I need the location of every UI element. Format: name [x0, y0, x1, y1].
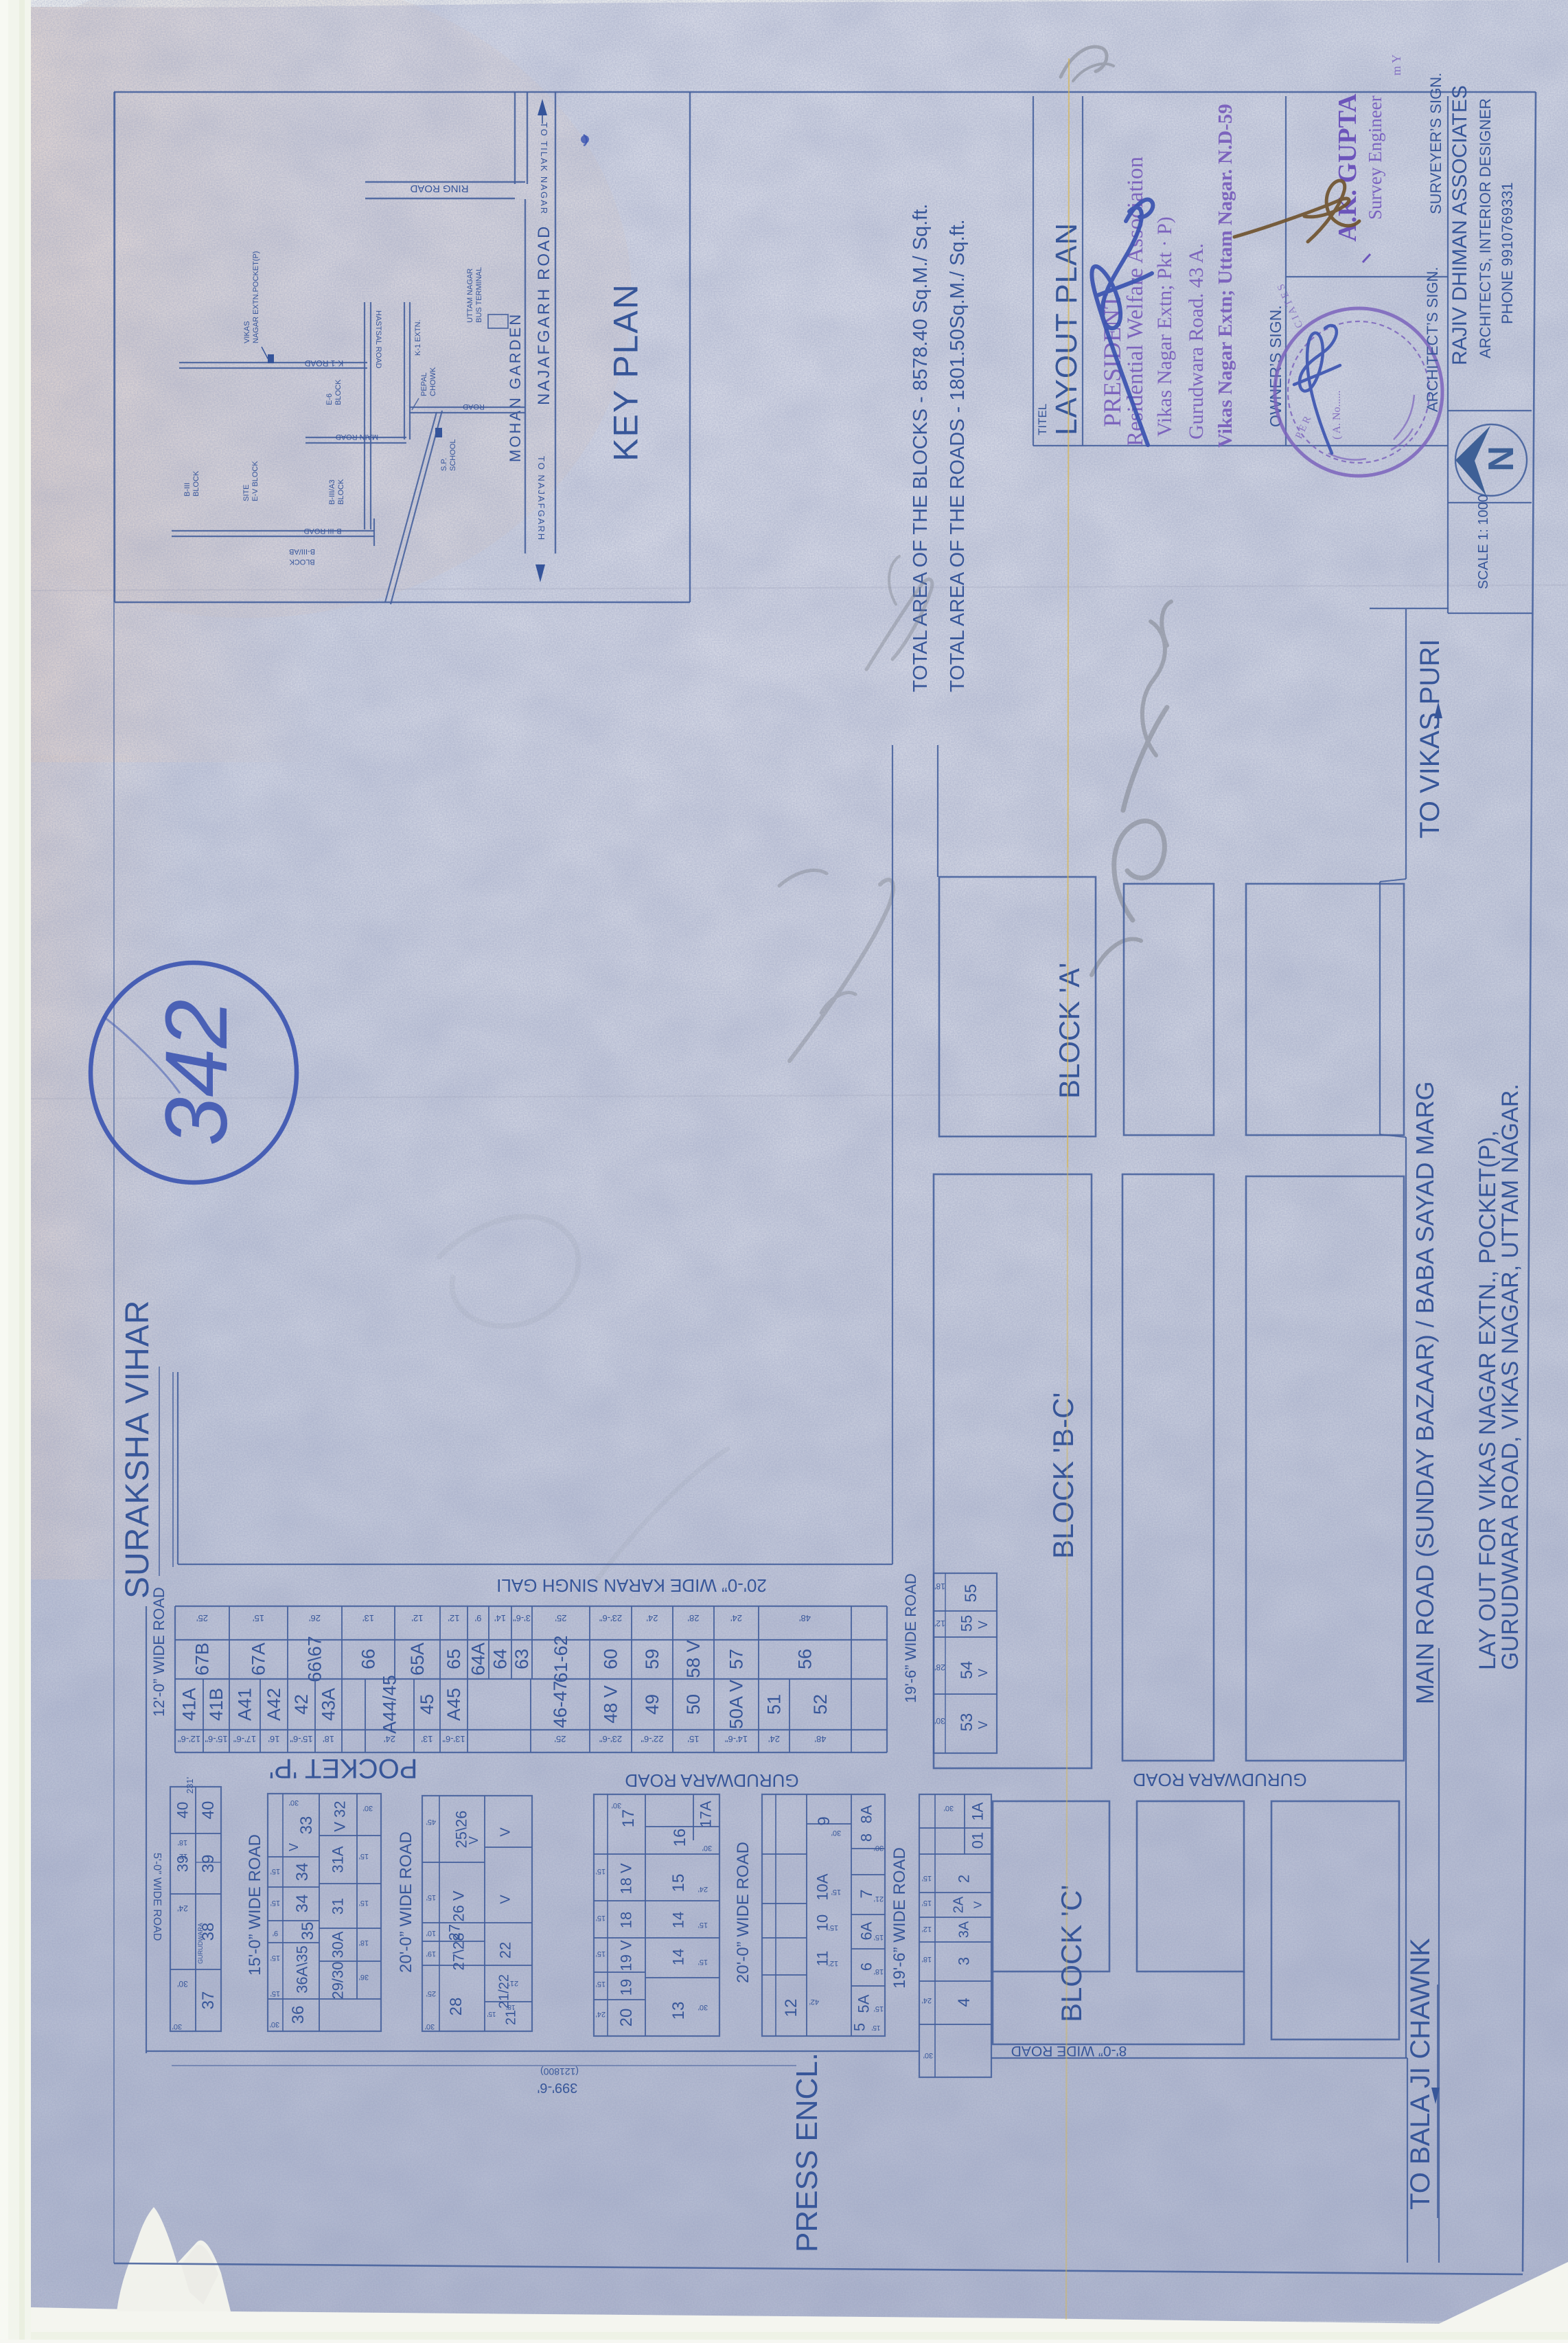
svg-text:24': 24' [647, 1613, 658, 1623]
svg-text:BLOCK 'B-C': BLOCK 'B-C' [1047, 1393, 1079, 1559]
svg-text:54: 54 [958, 1661, 976, 1680]
svg-text:15': 15' [829, 1923, 838, 1932]
svg-text:21': 21' [874, 1895, 884, 1903]
svg-text:12': 12' [922, 1925, 932, 1933]
svg-text:15': 15' [922, 1899, 932, 1907]
svg-text:2A: 2A [952, 1896, 967, 1913]
svg-text:16: 16 [671, 1829, 689, 1847]
svg-text:23'-6": 23'-6" [599, 1734, 623, 1744]
svg-text:48 V: 48 V [600, 1685, 621, 1724]
svg-text:25': 25' [555, 1613, 567, 1623]
svg-text:ROAD: ROAD [463, 402, 485, 411]
svg-text:12: 12 [782, 1999, 800, 2018]
svg-text:15': 15' [596, 1914, 606, 1922]
svg-text:TITEL: TITEL [1036, 404, 1049, 435]
svg-text:PEPAL: PEPAL [420, 372, 428, 396]
svg-text:30': 30' [177, 1979, 188, 1989]
svg-text:37: 37 [199, 1991, 218, 2010]
svg-text:30': 30' [934, 1716, 945, 1726]
svg-text:12': 12' [178, 1852, 187, 1860]
svg-text:8: 8 [857, 1833, 875, 1842]
svg-text:231': 231' [185, 1777, 195, 1794]
svg-text:28': 28' [934, 1662, 945, 1672]
svg-text:MAIN ROAD (SUNDAY BAZAAR) / BA: MAIN ROAD (SUNDAY BAZAAR) / BABA SAYAD M… [1411, 1081, 1439, 1704]
svg-text:16': 16' [268, 1734, 280, 1744]
svg-text:V: V [467, 1836, 481, 1844]
svg-text:6: 6 [857, 1963, 875, 1971]
svg-text:63: 63 [511, 1649, 532, 1669]
svg-text:10': 10' [426, 1929, 436, 1937]
svg-text:SCHOOL: SCHOOL [449, 439, 457, 471]
svg-text:A42: A42 [264, 1688, 284, 1721]
svg-text:MOHAN GARDEN: MOHAN GARDEN [507, 312, 524, 462]
svg-text:30': 30' [172, 2022, 182, 2031]
svg-text:36: 36 [289, 2006, 308, 2024]
svg-text:41A: 41A [178, 1688, 199, 1721]
svg-text:64: 64 [489, 1649, 510, 1669]
svg-text:30': 30' [831, 1829, 841, 1837]
svg-text:BLOCK: BLOCK [337, 479, 345, 505]
svg-text:CHOWK: CHOWK [429, 367, 437, 396]
svg-text:30': 30' [874, 1844, 884, 1852]
svg-text:43A: 43A [318, 1688, 338, 1721]
svg-text:36A\35: 36A\35 [293, 1945, 310, 1993]
svg-text:15': 15' [270, 1899, 280, 1907]
svg-text:15': 15' [487, 2010, 496, 2018]
svg-text:BLOCK: BLOCK [334, 379, 343, 405]
svg-text:NAGAR EXTN.POCKET(P): NAGAR EXTN.POCKET(P) [252, 251, 260, 343]
svg-text:15': 15' [688, 1734, 700, 1744]
svg-text:7: 7 [857, 1889, 876, 1898]
svg-text:GURUDWARA ROAD: GURUDWARA ROAD [1133, 1770, 1306, 1790]
svg-text:SCALE 1: 1000: SCALE 1: 1000 [1476, 494, 1491, 589]
svg-text:9: 9 [815, 1816, 833, 1825]
svg-text:30': 30' [425, 2022, 435, 2031]
svg-text:15': 15' [359, 1899, 369, 1907]
svg-text:18': 18' [934, 1581, 945, 1591]
svg-text:50A V: 50A V [726, 1680, 746, 1729]
svg-text:35: 35 [299, 1922, 317, 1941]
svg-text:POCKET 'P': POCKET 'P' [269, 1753, 418, 1783]
svg-text:40: 40 [199, 1801, 218, 1820]
svg-text:V: V [976, 1721, 990, 1729]
svg-text:66\67: 66\67 [304, 1636, 325, 1682]
svg-text:(121800): (121800) [540, 2066, 579, 2077]
svg-text:60: 60 [600, 1649, 621, 1669]
svg-text:14'-6": 14'-6" [725, 1734, 748, 1744]
svg-text:ARCHITECTS, INTERIOR DESIGNER: ARCHITECTS, INTERIOR DESIGNER [1477, 98, 1494, 358]
svg-text:B-III/A3: B-III/A3 [328, 479, 336, 505]
svg-text:( A. No......: ( A. No...... [1331, 390, 1343, 439]
svg-text:399'-6': 399'-6' [538, 2080, 578, 2095]
svg-text:BUS TERMINAL: BUS TERMINAL [475, 267, 483, 323]
svg-text:Vikas Nagar Extn; Pkt · P): Vikas Nagar Extn; Pkt · P) [1153, 216, 1176, 437]
svg-text:15'-0” WIDE ROAD: 15'-0” WIDE ROAD [246, 1834, 264, 1976]
svg-text:12'-6": 12'-6" [178, 1734, 201, 1744]
svg-text:22: 22 [496, 1942, 514, 1958]
svg-text:V: V [287, 1843, 301, 1851]
svg-text:30': 30' [363, 1804, 373, 1812]
svg-text:19: 19 [617, 1979, 634, 1996]
svg-text:BLOCK: BLOCK [192, 470, 200, 496]
svg-text:B-III/AB: B-III/AB [289, 547, 315, 556]
svg-text:13': 13' [422, 1734, 433, 1744]
svg-text:13': 13' [362, 1613, 374, 1623]
svg-text:52: 52 [810, 1694, 831, 1715]
svg-text:24': 24' [596, 2010, 606, 2018]
svg-text:m Y: m Y [1390, 54, 1403, 76]
svg-text:A44/45: A44/45 [379, 1675, 400, 1734]
svg-text:19 V: 19 V [617, 1940, 634, 1971]
svg-text:A45: A45 [443, 1688, 464, 1721]
svg-text:13: 13 [669, 2002, 688, 2020]
svg-text:42: 42 [291, 1694, 312, 1715]
svg-text:SURAKSHA VIHAR: SURAKSHA VIHAR [119, 1300, 156, 1599]
svg-text:22'-6": 22'-6" [641, 1734, 664, 1744]
svg-text:15': 15' [698, 1958, 708, 1966]
svg-text:40: 40 [174, 1802, 191, 1818]
svg-text:5'-0” WIDE ROAD: 5'-0” WIDE ROAD [151, 1853, 163, 1941]
svg-text:18 V: 18 V [617, 1863, 634, 1895]
svg-text:10A: 10A [814, 1873, 831, 1900]
svg-text:RING ROAD: RING ROAD [410, 183, 468, 194]
svg-text:42': 42' [809, 1998, 819, 2006]
svg-text:30': 30' [944, 1804, 954, 1812]
svg-text:Survey Engineer: Survey Engineer [1365, 95, 1385, 220]
svg-text:12': 12' [934, 1619, 945, 1628]
svg-text:41B: 41B [206, 1688, 227, 1721]
svg-text:TO NAJAFGARH: TO NAJAFGARH [536, 456, 546, 541]
svg-text:19'-6” WIDE ROAD: 19'-6” WIDE ROAD [890, 1847, 909, 1989]
svg-text:31A: 31A [329, 1846, 346, 1873]
svg-text:TO TILAK NAGAR: TO TILAK NAGAR [539, 122, 549, 215]
svg-text:17: 17 [619, 1809, 638, 1828]
svg-text:61-62: 61-62 [551, 1635, 571, 1682]
svg-text:S.P.: S.P. [440, 458, 448, 471]
svg-text:15': 15' [270, 1867, 280, 1875]
svg-text:V: V [498, 1827, 514, 1837]
svg-text:51: 51 [763, 1694, 784, 1715]
svg-text:18: 18 [617, 1912, 634, 1928]
svg-text:KEY PLAN: KEY PLAN [607, 283, 645, 461]
svg-text:45: 45 [417, 1694, 437, 1715]
svg-text:27\28: 27\28 [450, 1932, 467, 1970]
svg-text:33: 33 [297, 1816, 316, 1835]
svg-text:8A: 8A [857, 1805, 875, 1823]
svg-text:18': 18' [178, 1838, 187, 1847]
svg-text:67B: 67B [192, 1643, 212, 1676]
svg-text:30': 30' [698, 2003, 708, 2011]
svg-text:26 V: 26 V [450, 1890, 467, 1922]
svg-text:15': 15' [874, 1933, 884, 1941]
svg-text:46-47: 46-47 [550, 1680, 570, 1728]
svg-text:17A: 17A [697, 1801, 714, 1827]
svg-text:2: 2 [955, 1875, 972, 1883]
svg-text:15': 15' [426, 1893, 436, 1901]
svg-text:ARCHITECT’S SIGN.: ARCHITECT’S SIGN. [1424, 267, 1441, 412]
svg-text:20'-0” WIDE ROAD: 20'-0” WIDE ROAD [397, 1831, 415, 1973]
svg-text:N: N [1481, 446, 1521, 472]
svg-text:HASTSAL ROAD: HASTSAL ROAD [374, 310, 382, 369]
svg-text:30': 30' [289, 1798, 299, 1807]
svg-text:12': 12' [412, 1613, 424, 1623]
svg-text:BLOCK: BLOCK [289, 558, 315, 566]
svg-text:15': 15' [871, 2024, 880, 2031]
svg-text:V: V [498, 1895, 514, 1904]
svg-text:49: 49 [642, 1694, 662, 1715]
svg-text:64A: 64A [468, 1643, 488, 1676]
svg-text:53: 53 [958, 1713, 976, 1732]
svg-text:19'-6” WIDE ROAD: 19'-6” WIDE ROAD [902, 1573, 919, 1703]
svg-text:19': 19' [426, 1950, 436, 1958]
svg-text:25': 25' [426, 1989, 436, 1998]
svg-text:342: 342 [148, 999, 246, 1146]
svg-text:11: 11 [814, 1951, 831, 1967]
svg-text:34: 34 [293, 1895, 312, 1913]
svg-text:15'-6": 15'-6" [205, 1734, 228, 1744]
svg-text:RAJIV DHIMAN ASSOCIATES: RAJIV DHIMAN ASSOCIATES [1449, 85, 1471, 365]
svg-text:55: 55 [962, 1584, 980, 1603]
svg-text:13'-6": 13'-6" [442, 1734, 465, 1744]
svg-text:12': 12' [829, 1959, 838, 1967]
svg-text:28': 28' [688, 1613, 700, 1623]
svg-text:A41: A41 [234, 1688, 255, 1721]
svg-text:SITE: SITE [242, 485, 251, 501]
svg-text:LAYOUT PLAN: LAYOUT PLAN [1050, 222, 1083, 435]
svg-text:30': 30' [923, 2051, 933, 2059]
svg-text:30': 30' [270, 2020, 279, 2028]
svg-text:18': 18' [506, 2003, 515, 2011]
svg-text:18': 18' [922, 1955, 932, 1963]
svg-text:21: 21 [504, 2010, 519, 2025]
svg-text:15': 15' [596, 1867, 606, 1875]
svg-text:36': 36' [359, 1973, 369, 1981]
svg-text:Vikas Nagar Extn; Uttam Nagar.: Vikas Nagar Extn; Uttam Nagar. N.D-59 [1214, 104, 1236, 448]
svg-text:NAJAFGARH ROAD: NAJAFGARH ROAD [535, 225, 553, 405]
svg-text:28: 28 [447, 1998, 465, 2016]
svg-text:E-V BLOCK: E-V BLOCK [251, 461, 260, 501]
svg-text:45': 45' [426, 1818, 436, 1826]
svg-text:65A: 65A [407, 1643, 428, 1676]
svg-text:24': 24' [922, 1996, 932, 2004]
svg-text:6A: 6A [857, 1921, 875, 1940]
svg-text:34: 34 [293, 1863, 312, 1882]
svg-text:14: 14 [669, 1949, 687, 1965]
svg-text:V: V [972, 1901, 984, 1908]
svg-text:26': 26' [309, 1613, 321, 1623]
svg-text:15': 15' [596, 1980, 606, 1988]
svg-text:PHONE 9910769331: PHONE 9910769331 [1499, 182, 1516, 324]
svg-text:39: 39 [199, 1855, 218, 1873]
svg-text:66: 66 [358, 1649, 378, 1669]
svg-text:10: 10 [814, 1915, 831, 1931]
svg-text:20'-0” WIDE ROAD: 20'-0” WIDE ROAD [734, 1842, 752, 1983]
svg-text:18': 18' [874, 1967, 884, 1976]
svg-text:15': 15' [359, 1852, 369, 1860]
svg-text:67A: 67A [248, 1643, 268, 1676]
svg-text:TOTAL AREA OF THE ROADS - 1: TOTAL AREA OF THE ROADS - 1801.50Sq.M./ … [947, 219, 969, 692]
svg-text:17'-6": 17'-6" [233, 1734, 257, 1744]
svg-text:30': 30' [612, 1801, 621, 1809]
svg-text:A.K. GUPTA: A.K. GUPTA [1333, 93, 1362, 242]
svg-text:GURUDWARA ROAD: GURUDWARA ROAD [625, 1770, 798, 1791]
svg-text:12': 12' [448, 1613, 460, 1623]
svg-text:V 32: V 32 [331, 1801, 348, 1831]
svg-text:24': 24' [698, 1885, 708, 1893]
svg-text:57: 57 [726, 1649, 746, 1669]
svg-text:1A: 1A [969, 1802, 986, 1820]
svg-text:15': 15' [253, 1613, 264, 1623]
svg-text:15': 15' [698, 1921, 708, 1929]
svg-text:15': 15' [270, 1989, 280, 1998]
svg-text:9': 9' [273, 1929, 278, 1937]
svg-text:15: 15 [669, 1874, 688, 1893]
svg-text:31: 31 [329, 1898, 346, 1915]
svg-text:56: 56 [794, 1649, 815, 1669]
svg-text:K-1 EXTN.: K-1 EXTN. [414, 319, 422, 356]
svg-text:5A: 5A [855, 1994, 872, 2013]
svg-text:14: 14 [669, 1912, 687, 1928]
svg-text:GURUDWARA ROAD, VIKAS NAGAR, U: GURUDWARA ROAD, VIKAS NAGAR, UTTAM NAGAR… [1497, 1084, 1523, 1670]
svg-text:GURUDWARA: GURUDWARA [197, 1923, 204, 1964]
svg-text:V: V [976, 1669, 990, 1677]
svg-text:15'-6": 15'-6" [290, 1734, 313, 1744]
svg-text:30': 30' [702, 1844, 712, 1852]
svg-text:BLOCK 'A': BLOCK 'A' [1053, 963, 1085, 1099]
svg-text:55: 55 [958, 1615, 975, 1632]
svg-text:9': 9' [475, 1613, 482, 1623]
svg-text:3: 3 [955, 1957, 972, 1965]
svg-text:SURVEYER’S SIGN.: SURVEYER’S SIGN. [1427, 73, 1444, 214]
svg-text:15': 15' [596, 1950, 606, 1958]
svg-text:8'-0” WIDE ROAD: 8'-0” WIDE ROAD [1011, 2043, 1127, 2059]
svg-text:K-1 ROAD: K-1 ROAD [304, 358, 343, 368]
svg-text:VIKAS: VIKAS [243, 321, 251, 343]
svg-text:20: 20 [617, 2009, 636, 2027]
svg-text:25': 25' [196, 1613, 208, 1623]
svg-text:V: V [976, 1621, 990, 1629]
svg-text:25': 25' [555, 1734, 566, 1744]
svg-text:01: 01 [969, 1832, 986, 1849]
svg-text:TO VIKAS PURI: TO VIKAS PURI [1415, 639, 1445, 838]
svg-text:58 V: 58 V [683, 1640, 704, 1678]
svg-text:59: 59 [642, 1649, 662, 1669]
svg-text:15': 15' [270, 1954, 280, 1962]
svg-text:B-III ROAD: B-III ROAD [303, 527, 341, 535]
svg-text:3A: 3A [957, 1921, 972, 1938]
svg-text:23'-6": 23'-6" [599, 1613, 623, 1623]
svg-text:14': 14' [494, 1613, 506, 1623]
svg-text:24': 24' [384, 1734, 395, 1744]
svg-text:TO BALA JI CHAWNK: TO BALA JI CHAWNK [1405, 1938, 1436, 2210]
svg-text:UTTAM NAGAR: UTTAM NAGAR [466, 268, 474, 323]
svg-text:15': 15' [922, 1874, 932, 1882]
svg-text:5: 5 [851, 2023, 868, 2031]
svg-text:18': 18' [359, 1939, 369, 1947]
svg-text:B-III: B-III [183, 483, 192, 496]
svg-text:15': 15' [874, 2004, 884, 2013]
svg-text:20'-0” WIDE KARAN SINGH GALI: 20'-0” WIDE KARAN SINGH GALI [496, 1575, 767, 1596]
svg-text:4: 4 [955, 1998, 973, 2007]
svg-text:24': 24' [730, 1613, 742, 1623]
svg-text:PRESS ENCL.: PRESS ENCL. [790, 2053, 824, 2252]
svg-text:30A: 30A [329, 1931, 346, 1958]
svg-text:65: 65 [443, 1649, 464, 1669]
svg-text:18': 18' [323, 1734, 334, 1744]
svg-text:Gurudwara Road. 43 A.: Gurudwara Road. 43 A. [1185, 243, 1208, 439]
svg-text:BLOCK 'C': BLOCK 'C' [1055, 1885, 1087, 2022]
svg-text:3'-6": 3'-6" [513, 1613, 531, 1623]
svg-text:24': 24' [768, 1734, 780, 1744]
svg-text:15': 15' [831, 1888, 841, 1896]
svg-text:MAIN ROAD: MAIN ROAD [336, 433, 378, 441]
svg-text:48': 48' [815, 1734, 827, 1744]
svg-text:29/30: 29/30 [329, 1961, 346, 1999]
svg-text:24': 24' [177, 1904, 188, 1913]
svg-text:50: 50 [683, 1694, 704, 1715]
svg-text:12'-0” WIDE ROAD: 12'-0” WIDE ROAD [150, 1587, 168, 1717]
svg-text:48': 48' [799, 1613, 811, 1623]
svg-text:E-6: E-6 [325, 393, 334, 405]
